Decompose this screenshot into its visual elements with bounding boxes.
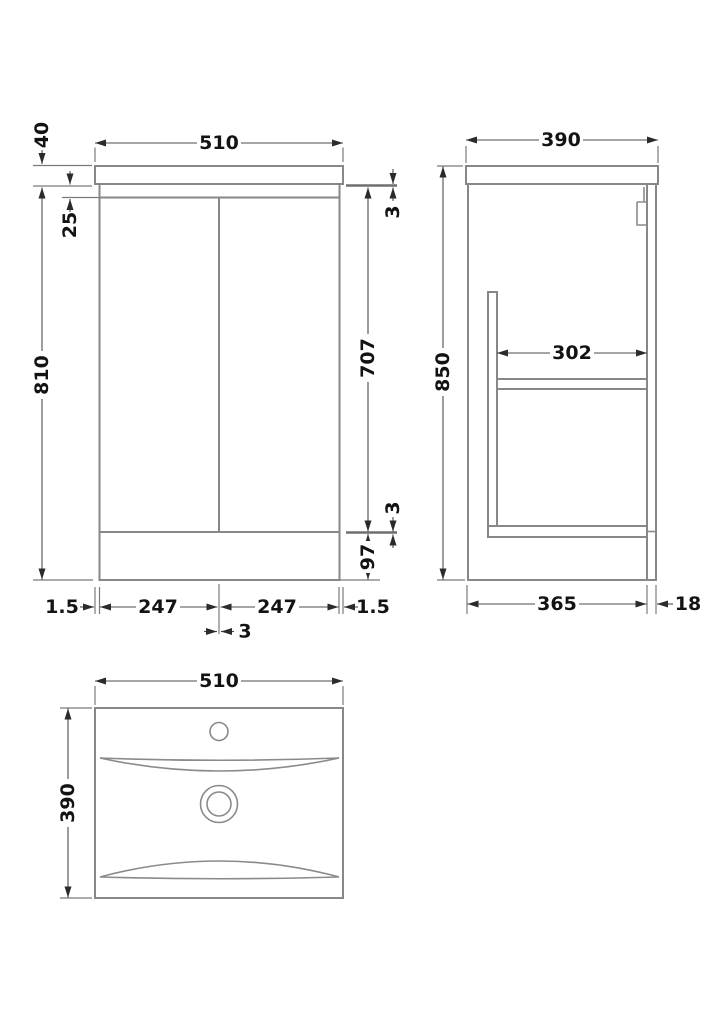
basin-back-ledge-curve [100,861,339,879]
dim-side-shelf-depth: 302 [497,342,647,364]
dim-side-depth: 390 [466,129,658,163]
technical-drawing-canvas: 510 40 25 810 [0,0,724,1024]
side-elevation-view: 390 850 302 365 18 [432,129,701,615]
dim-label-bottom-gap: 3 [382,501,404,514]
dim-label-plinth-height: 97 [357,544,379,570]
dim-front-plinth-height: 97 [340,534,380,580]
tap-hole [210,723,228,741]
dim-label-left-door-width: 247 [138,596,178,618]
dim-front-door-height: 707 [357,188,379,532]
dim-label-body-height: 810 [31,355,53,395]
dim-side-total-height: 850 [432,166,465,580]
dim-label-plan-depth: 390 [57,783,79,823]
technical-drawing-page: 510 40 25 810 [0,0,724,1024]
dim-front-overall-width: 510 [95,132,343,162]
dim-front-worktop-thickness: 40 [31,122,92,186]
dim-label-left-overhang: 1.5 [45,596,79,618]
dim-front-top-gap: 3 [346,169,404,219]
dim-front-bottom-row: 1.5 247 247 1.5 3 [45,584,390,643]
side-worktop-outline [466,166,658,184]
dim-label-door-gap: 3 [238,621,251,643]
side-internal-upright-panel [488,292,497,526]
side-bottom-shelf-outline [488,526,647,537]
front-worktop-outline [95,166,343,184]
dim-label-right-overhang: 1.5 [356,596,390,618]
dim-label-base-depth: 365 [537,593,577,615]
dim-label-worktop-thickness: 40 [31,122,53,148]
dim-label-top-gap: 3 [382,205,404,218]
dim-side-base-row: 365 18 [467,585,701,615]
dim-label-right-door-width: 247 [257,596,297,618]
waste-drain-outer-ring [201,786,238,823]
dim-front-top-inset: 25 [59,171,99,238]
basin-front-ledge-curve [100,758,339,771]
dim-label-back-panel-thickness: 18 [675,593,701,615]
dim-label-top-inset: 25 [59,212,81,238]
side-shelf-outline [497,379,647,389]
side-hanging-bracket [637,187,647,225]
dim-label-door-height: 707 [357,338,379,378]
waste-drain-inner-ring [207,792,231,816]
dim-label-side-depth: 390 [541,129,581,151]
dim-plan-depth: 390 [57,708,92,898]
dim-label-front-width: 510 [199,132,239,154]
front-elevation-view: 510 40 25 810 [31,122,404,643]
dim-label-total-height: 850 [432,352,454,392]
dim-front-body-height: 810 [31,188,93,581]
basin-plan-view: 510 390 [57,670,343,898]
dim-label-plan-width: 510 [199,670,239,692]
dim-plan-width: 510 [95,670,343,705]
dim-label-shelf-depth: 302 [552,342,592,364]
